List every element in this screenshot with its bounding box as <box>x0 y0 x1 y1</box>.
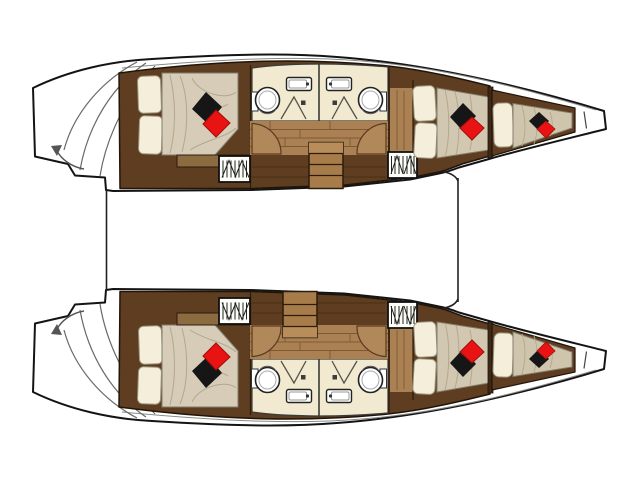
catamaran-floor-plan <box>0 0 640 480</box>
forward-crossbeam-line <box>444 172 458 308</box>
staircase-bottom-hull <box>283 292 317 338</box>
hull-bottom <box>33 289 606 425</box>
staircase-top-hull <box>309 143 343 189</box>
floor-plan-canvas <box>0 0 640 480</box>
